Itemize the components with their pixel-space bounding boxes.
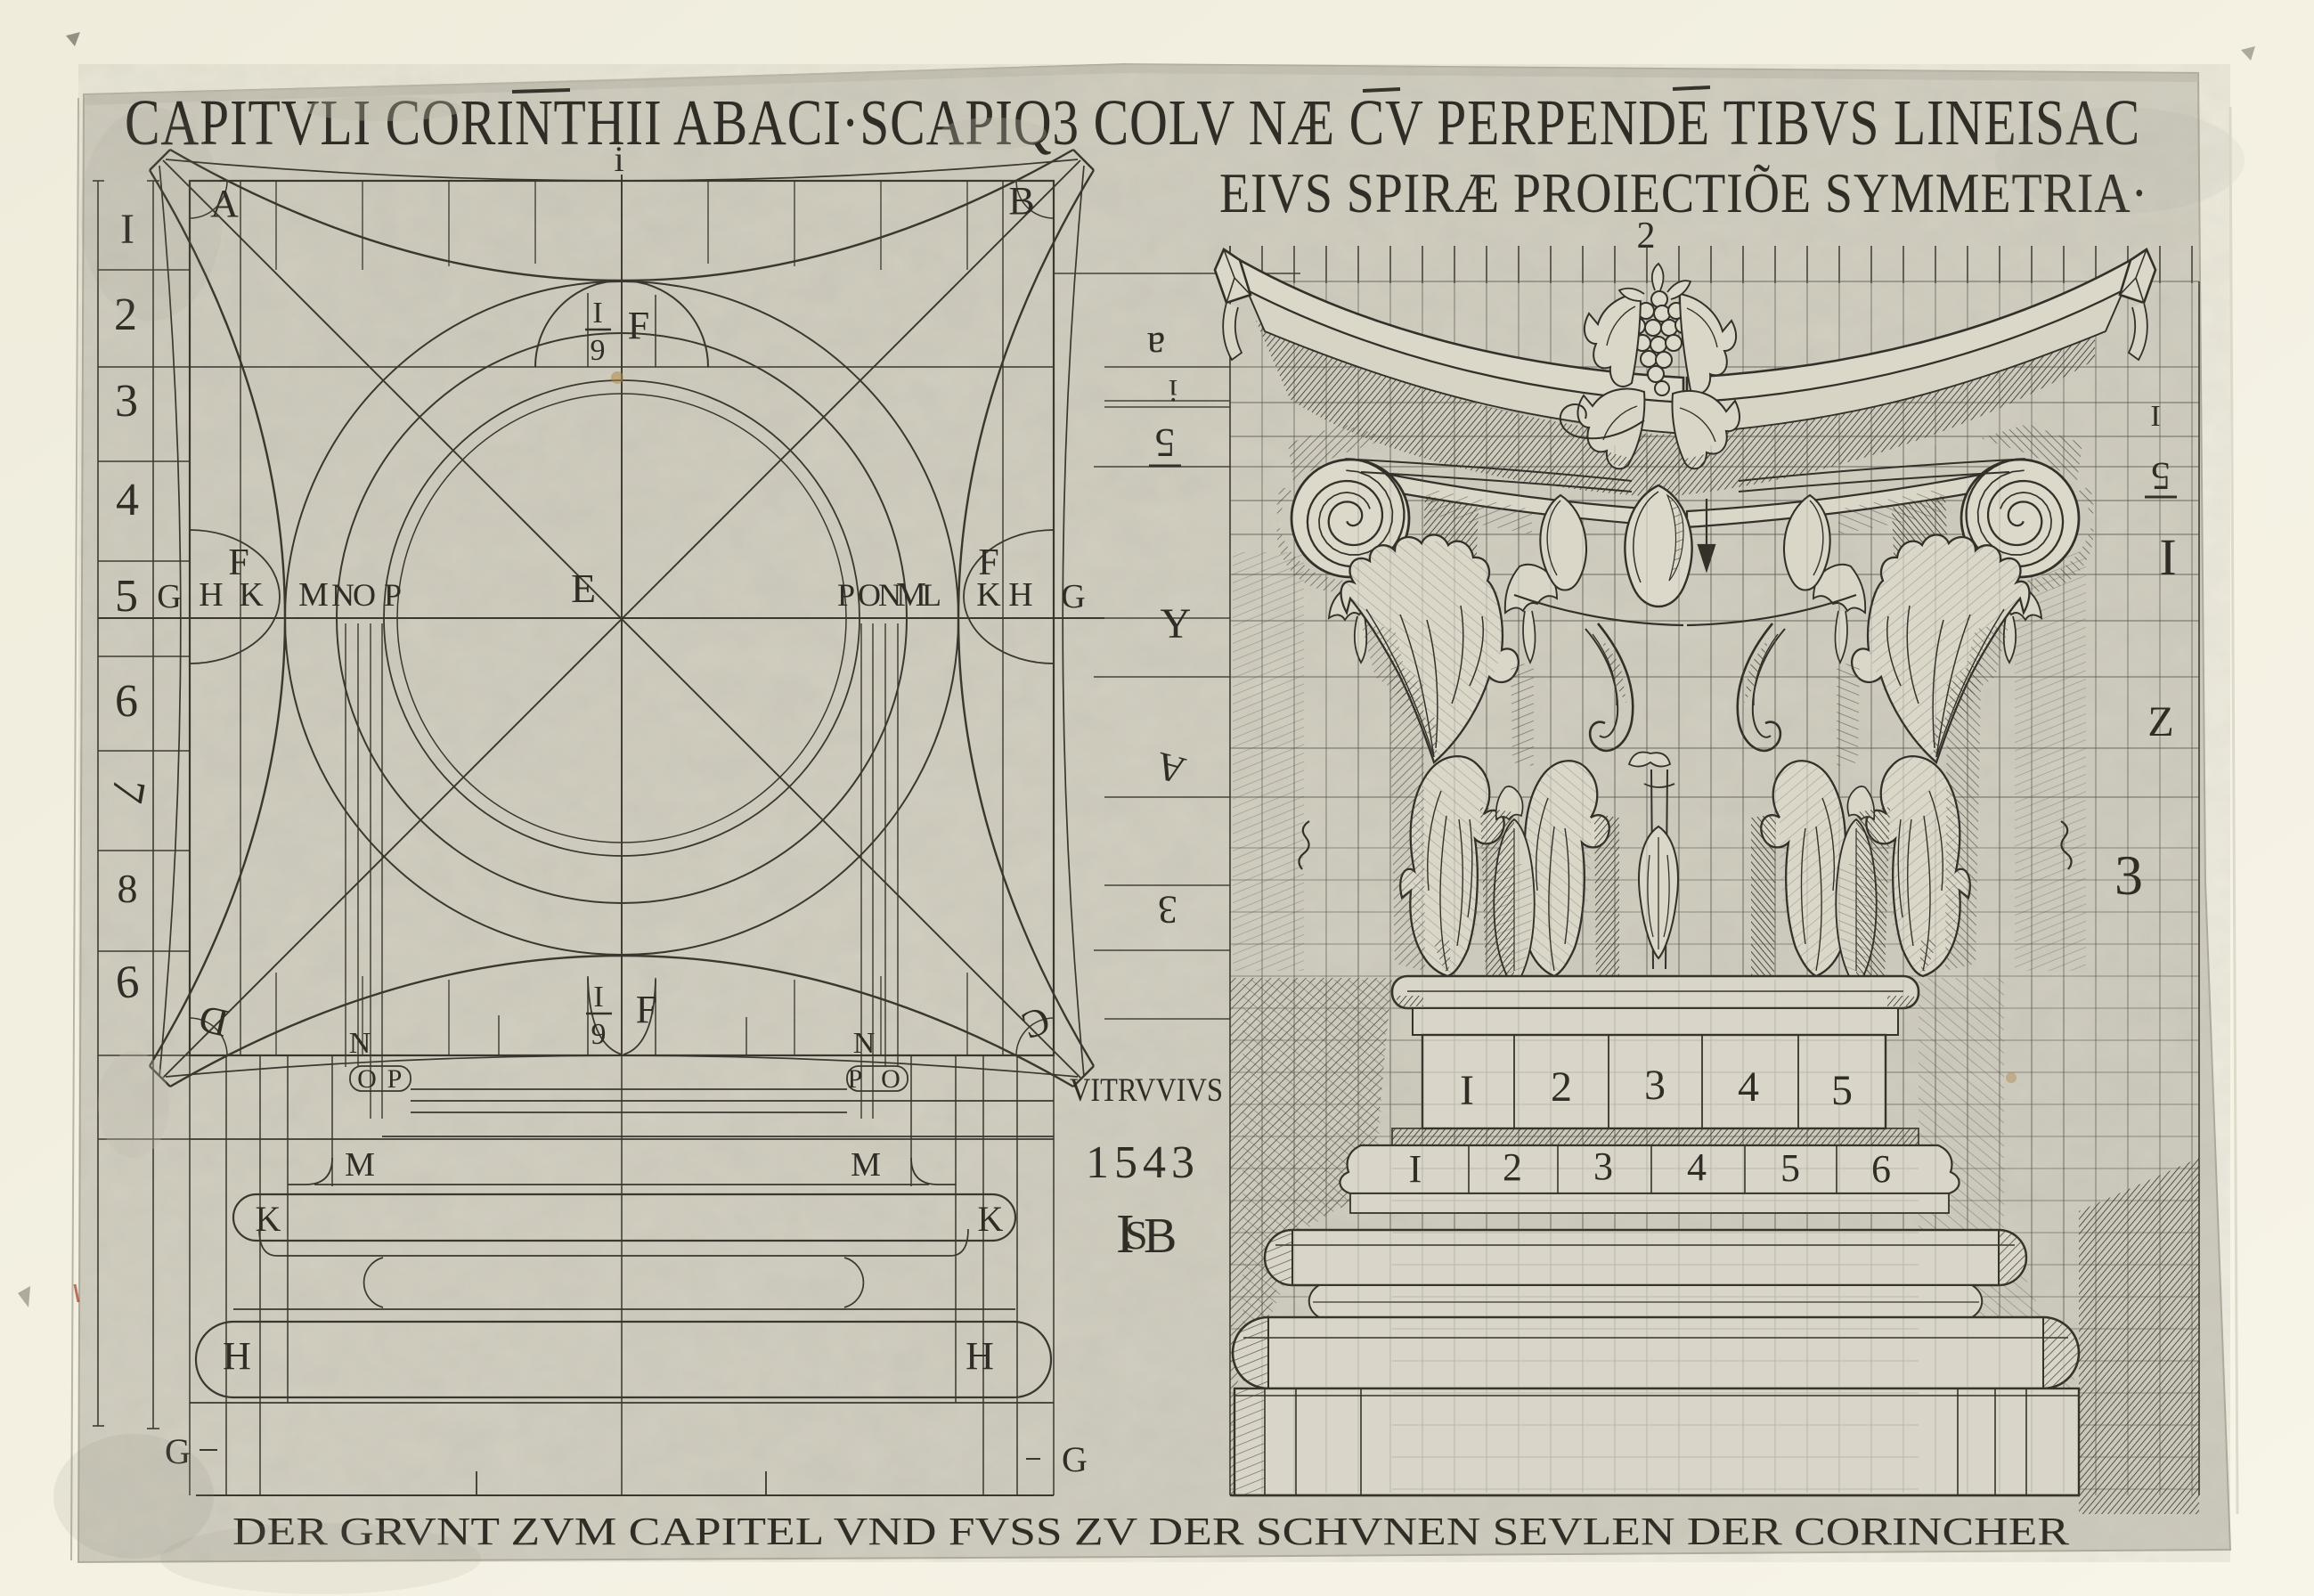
svg-text:3: 3 [1158,888,1177,932]
svg-text:a: a [1147,324,1165,370]
svg-text:K: K [978,1199,1004,1239]
svg-text:5: 5 [1831,1067,1853,1114]
svg-text:2: 2 [1551,1063,1572,1111]
svg-text:Y: Y [1161,600,1192,647]
svg-text:P: P [848,1064,863,1094]
svg-text:O: O [353,577,376,613]
svg-text:M: M [851,1146,881,1184]
svg-text:DER GRVNT ZVM CAPITEL VND FVSS: DER GRVNT ZVM CAPITEL VND FVSS ZV DER SC… [232,1510,2070,1553]
svg-text:F: F [628,304,649,347]
svg-text:i: i [614,139,623,179]
svg-text:I: I [593,981,603,1014]
svg-text:N: N [853,1027,876,1060]
svg-text:N: N [349,1027,371,1060]
svg-text:2: 2 [1637,216,1656,256]
svg-text:M: M [345,1146,375,1184]
svg-text:3: 3 [115,376,138,427]
svg-text:K: K [239,576,264,614]
svg-text:8: 8 [118,866,138,911]
svg-text:O: O [357,1064,377,1094]
svg-text:9: 9 [591,1018,607,1051]
svg-text:P: P [384,577,402,613]
svg-text:P: P [387,1064,403,1094]
svg-text:F: F [636,988,657,1031]
svg-text:5: 5 [2151,454,2171,498]
svg-text:B: B [1008,179,1034,223]
svg-text:1543: 1543 [1086,1137,1200,1188]
svg-text:3: 3 [2114,843,2143,907]
svg-text:I: I [1460,1067,1474,1114]
svg-text:3: 3 [1644,1062,1666,1109]
svg-text:P: P [837,577,855,613]
svg-text:B: B [1144,1209,1177,1264]
svg-text:O: O [881,1064,900,1094]
svg-text:I: I [592,297,602,330]
svg-text:6: 6 [115,676,138,727]
svg-text:H: H [966,1334,994,1378]
svg-text:Z: Z [2147,698,2173,745]
svg-text:I: I [2150,400,2160,433]
svg-text:G: G [1062,1439,1088,1479]
svg-text:H: H [223,1334,251,1378]
svg-text:N: N [331,577,354,613]
svg-text:H: H [199,576,223,614]
svg-text:G: G [1061,578,1085,615]
svg-text:5: 5 [115,571,138,622]
svg-text:M: M [298,576,329,614]
svg-text:L: L [922,577,941,613]
svg-text:2: 2 [1503,1145,1522,1189]
svg-text:i: i [1169,373,1177,409]
svg-text:3: 3 [1593,1144,1613,1188]
svg-text:E: E [571,566,596,611]
svg-text:4: 4 [1738,1063,1759,1111]
svg-text:H: H [1008,576,1032,614]
svg-text:9: 9 [591,334,606,367]
svg-text:G: G [157,578,181,615]
svg-text:4: 4 [1687,1145,1707,1189]
svg-text:CAPITVLI CORINTHII ABACI·SCAPI: CAPITVLI CORINTHII ABACI·SCAPIQ3 COLV NÆ… [125,86,2140,159]
svg-text:I: I [2159,528,2176,586]
svg-text:4: 4 [116,475,139,525]
svg-text:VITRVVIVS: VITRVVIVS [1070,1072,1223,1109]
svg-text:9: 9 [114,956,142,1008]
svg-text:5: 5 [1155,420,1176,466]
svg-text:K: K [976,576,1001,614]
